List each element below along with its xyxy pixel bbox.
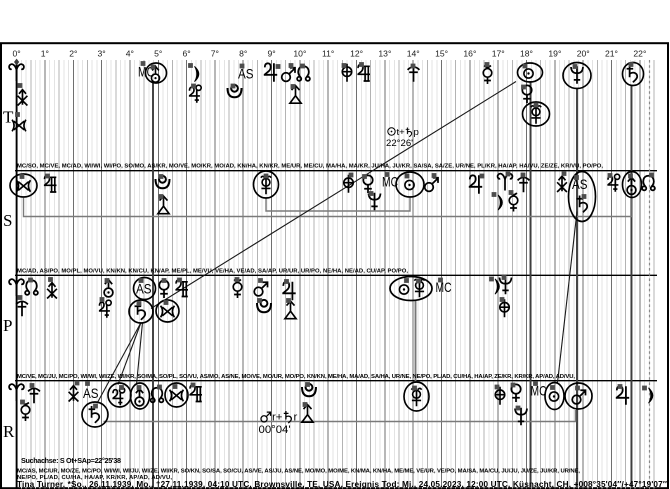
svg-text:22°26': 22°26': [386, 138, 413, 149]
svg-text:12°: 12°: [350, 49, 363, 59]
svg-text:t+: t+: [397, 127, 406, 138]
svg-text:MC/SO, MC/VE, MC/AD, WI/WI, WI: MC/SO, MC/VE, MC/AD, WI/WI, WI/PO, SO/MO…: [17, 164, 603, 170]
svg-text:T: T: [3, 108, 14, 127]
svg-text:00°04': 00°04': [259, 424, 291, 436]
svg-text:MC/AD, AS/PO, MO/PL, MO/VU, KN: MC/AD, AS/PO, MO/PL, MO/VU, KN/KN, KN/CU…: [17, 269, 408, 275]
svg-text:S: S: [3, 211, 12, 230]
svg-text:AS: AS: [136, 281, 152, 297]
svg-text:15°: 15°: [435, 49, 448, 59]
svg-text:R: R: [3, 422, 15, 441]
svg-text:13°: 13°: [378, 49, 391, 59]
svg-text:Suchachse: S Ot+SAp=22°25'38: Suchachse: S Ot+SAp=22°25'38: [21, 456, 121, 465]
svg-text:MC: MC: [436, 279, 452, 295]
svg-text:7°: 7°: [211, 49, 219, 59]
svg-text:Tina Turner, *So., 26.11.1939,: Tina Turner, *So., 26.11.1939, Mo., †27.…: [17, 480, 667, 489]
svg-text:MC: MC: [531, 383, 547, 399]
svg-text:10°: 10°: [293, 49, 306, 59]
svg-text:11°: 11°: [322, 49, 334, 59]
svg-text:9°: 9°: [267, 49, 275, 59]
svg-text:P: P: [3, 316, 12, 335]
svg-text:6°: 6°: [182, 49, 190, 59]
svg-text:2°: 2°: [69, 49, 77, 59]
svg-text:AS: AS: [83, 385, 99, 401]
svg-text:20°: 20°: [577, 49, 590, 59]
svg-text:MC/AS, MC/UR, MO/ZE, MC/PO, WI: MC/AS, MC/UR, MO/ZE, MC/PO, WI/WI, WI/JU…: [17, 469, 580, 475]
svg-text:3°: 3°: [97, 49, 105, 59]
svg-text:21°: 21°: [605, 49, 618, 59]
svg-text:4°: 4°: [126, 49, 134, 59]
svg-text:r: r: [294, 412, 298, 424]
svg-text:5°: 5°: [154, 49, 162, 59]
svg-text:14°: 14°: [407, 49, 420, 59]
svg-text:18°: 18°: [520, 49, 533, 59]
svg-text:17°: 17°: [492, 49, 505, 59]
svg-text:8°: 8°: [239, 49, 247, 59]
svg-text:p: p: [414, 127, 419, 138]
svg-text:r+: r+: [272, 412, 283, 424]
svg-text:MC/VE, MC/JU, MC/PO, WI/WI, WI: MC/VE, MC/JU, MC/PO, WI/WI, WI/ZE, WI/KR…: [17, 374, 575, 380]
svg-text:19°: 19°: [548, 49, 561, 59]
svg-text:0°: 0°: [12, 49, 20, 59]
svg-text:16°: 16°: [463, 49, 476, 59]
svg-text:1°: 1°: [41, 49, 49, 59]
svg-text:22°: 22°: [633, 49, 646, 59]
